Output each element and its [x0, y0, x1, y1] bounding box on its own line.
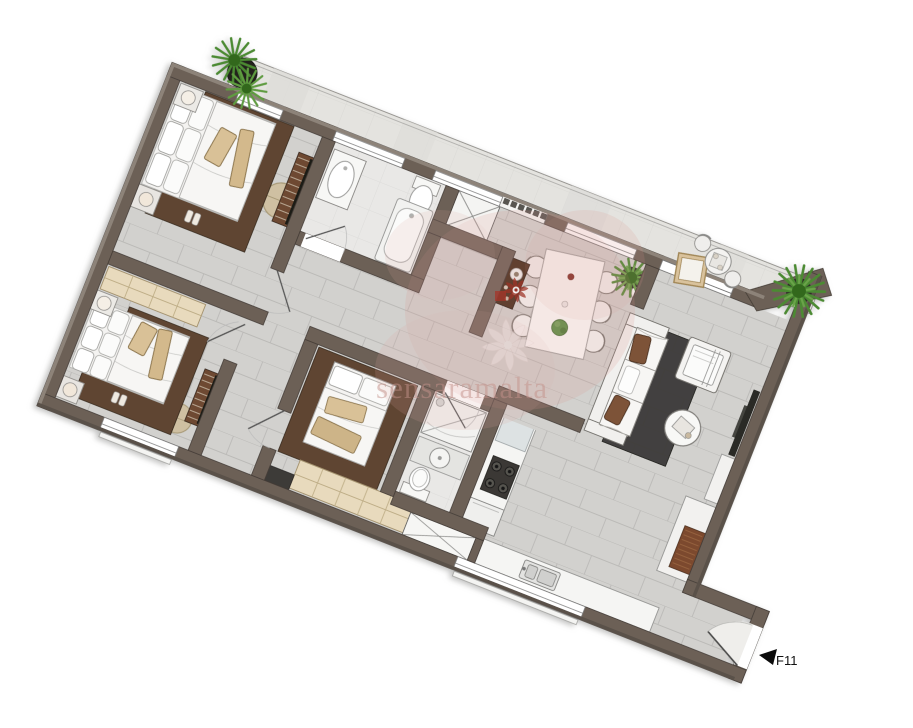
svg-text:F11: F11: [776, 653, 797, 668]
svg-text:sensaramalta: sensaramalta: [376, 370, 548, 405]
